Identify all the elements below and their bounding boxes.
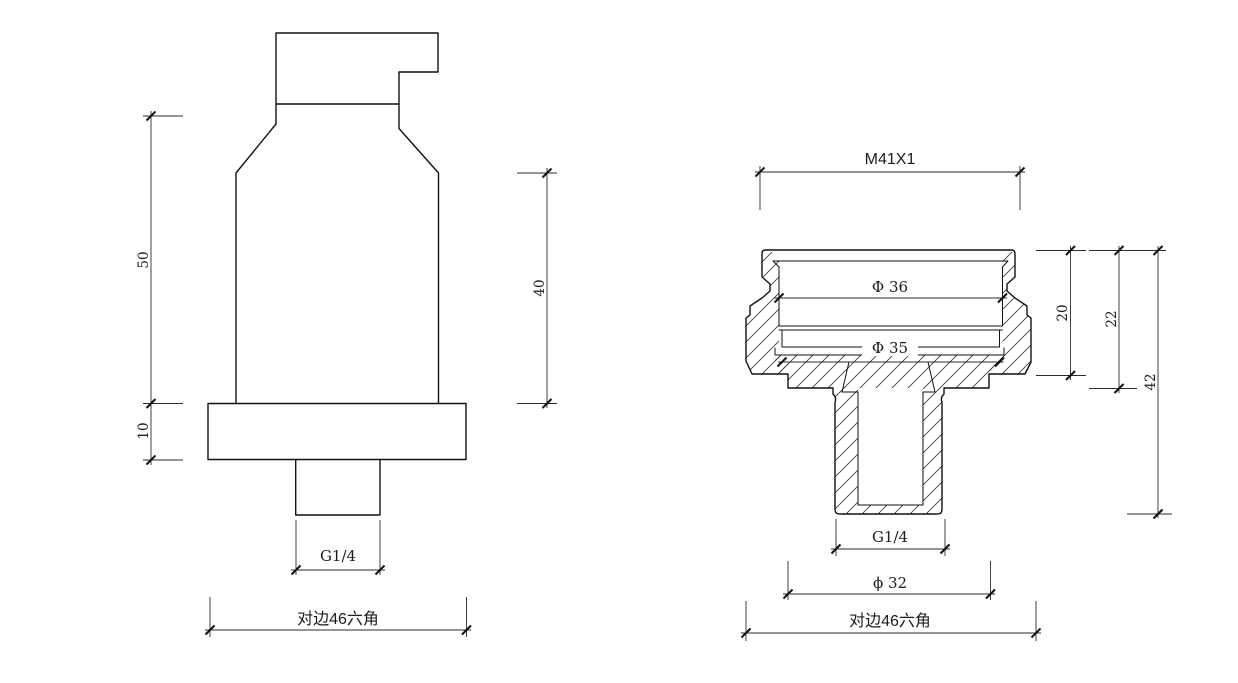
page: { "colors": { "background": "#ffffff", "… xyxy=(0,0,1238,683)
section-dim-phi36-label: Φ 36 xyxy=(872,278,908,296)
front-hex-flange xyxy=(208,404,466,460)
section-dim-g14-label: G1/4 xyxy=(872,528,908,546)
front-thread-stub xyxy=(296,460,380,516)
technical-drawing: 50 10 40 G1/4 对边46六角 xyxy=(0,0,1238,683)
front-dim-10-label: 10 xyxy=(136,422,152,439)
front-view: 50 10 40 G1/4 对边46六角 xyxy=(136,33,557,637)
front-dim-g14-label: G1/4 xyxy=(320,547,356,565)
front-view-dimensions: 50 10 40 G1/4 对边46六角 xyxy=(136,111,557,637)
front-dim-50-label: 50 xyxy=(136,251,152,268)
front-dim-hex-label: 对边46六角 xyxy=(297,610,379,628)
front-connector-and-body xyxy=(236,33,439,404)
section-dimensions: M41X1 Φ 36 Φ 35 20 22 42 G1/4 ϕ 32 对边46六… xyxy=(741,151,1172,641)
section-lid-inner xyxy=(773,261,1008,267)
front-dim-40-label: 40 xyxy=(532,279,548,296)
section-dim-42-label: 42 xyxy=(1143,373,1159,390)
front-view-outline xyxy=(208,33,466,515)
section-dimension-ticks xyxy=(742,168,1163,638)
section-dim-hex-label: 对边46六角 xyxy=(849,612,931,630)
hatch-floor-lower xyxy=(788,374,989,388)
section-bore xyxy=(858,392,923,505)
hatch-stem xyxy=(835,388,942,514)
hatch-floor-upper xyxy=(775,355,1004,374)
section-dim-phi32-label: ϕ 32 xyxy=(873,574,907,592)
section-cavity-36 xyxy=(779,267,1003,330)
section-dim-phi35-label: Φ 35 xyxy=(872,339,908,357)
section-dim-22-label: 22 xyxy=(1104,310,1120,327)
section-dim-m41-label: M41X1 xyxy=(865,151,916,168)
section-dim-20-label: 20 xyxy=(1055,304,1071,321)
section-view: M41X1 Φ 36 Φ 35 20 22 42 G1/4 ϕ 32 对边46六… xyxy=(741,151,1172,641)
